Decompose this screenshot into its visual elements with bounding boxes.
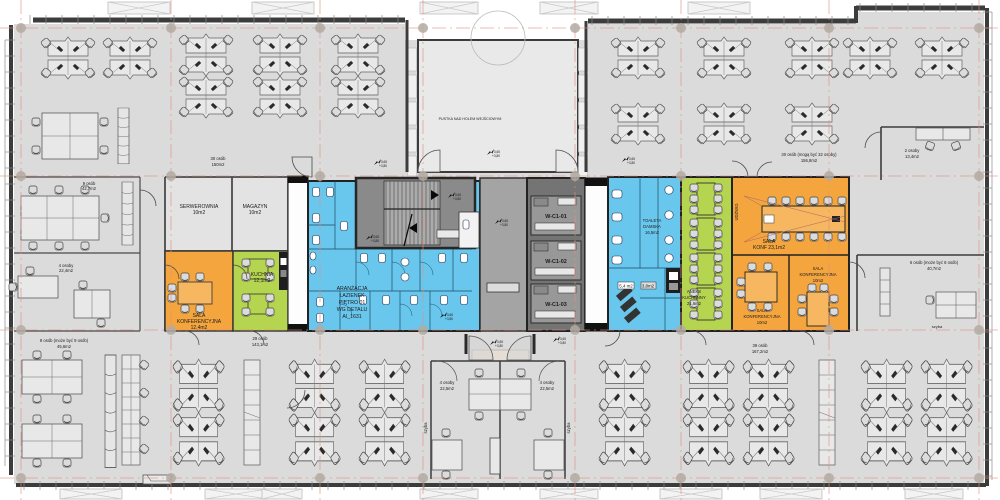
svg-text:22,4m2: 22,4m2 bbox=[59, 268, 74, 273]
svg-text:5,4 m2: 5,4 m2 bbox=[619, 284, 633, 289]
svg-text:150m2: 150m2 bbox=[212, 162, 225, 167]
svg-text:42,7m2: 42,7m2 bbox=[82, 186, 97, 191]
svg-text:TOALETA: TOALETA bbox=[643, 218, 662, 223]
svg-text:W-C1-03: W-C1-03 bbox=[545, 302, 566, 308]
svg-text:10m2: 10m2 bbox=[193, 210, 206, 216]
svg-text:4 osoby: 4 osoby bbox=[440, 380, 456, 385]
svg-text:21,6m2: 21,6m2 bbox=[687, 301, 702, 306]
svg-text:szyba: szyba bbox=[932, 324, 943, 329]
svg-text:10m2: 10m2 bbox=[249, 210, 262, 216]
svg-text:ŁAZIENEK: ŁAZIENEK bbox=[339, 293, 365, 299]
svg-text:30 osób: 30 osób bbox=[211, 156, 227, 161]
svg-text:143,1m2: 143,1m2 bbox=[252, 342, 269, 347]
svg-text:WG DETALU: WG DETALU bbox=[337, 307, 368, 313]
svg-text:10m2: 10m2 bbox=[813, 278, 824, 283]
svg-text:12,1m2: 12,1m2 bbox=[254, 278, 271, 284]
svg-text:AI_1631: AI_1631 bbox=[342, 314, 361, 320]
svg-text:22,5m2: 22,5m2 bbox=[440, 386, 455, 391]
svg-text:3,8m2: 3,8m2 bbox=[642, 284, 655, 289]
svg-text:PIĘTRO 01: PIĘTRO 01 bbox=[339, 300, 366, 306]
svg-text:45,6m2: 45,6m2 bbox=[57, 344, 72, 349]
svg-text:10m2: 10m2 bbox=[757, 320, 768, 325]
svg-text:KUCHENNY: KUCHENNY bbox=[682, 295, 706, 300]
svg-text:40,7m2: 40,7m2 bbox=[927, 266, 942, 271]
svg-text:ANEKS: ANEKS bbox=[687, 289, 701, 294]
svg-text:W-C1-01: W-C1-01 bbox=[545, 214, 566, 220]
svg-text:8 osób (może być 9 osób): 8 osób (może być 9 osób) bbox=[40, 338, 89, 343]
svg-text:PUSTKA NAD HOLEM WEJŚCIOWYM: PUSTKA NAD HOLEM WEJŚCIOWYM bbox=[439, 116, 502, 121]
svg-text:W-C1-02: W-C1-02 bbox=[545, 259, 566, 265]
svg-text:szyba: szyba bbox=[566, 422, 571, 434]
svg-text:156,8m2: 156,8m2 bbox=[801, 158, 818, 163]
svg-text:KONF 23,1m2: KONF 23,1m2 bbox=[753, 245, 785, 251]
svg-text:KONFERENCYJNA: KONFERENCYJNA bbox=[800, 272, 837, 277]
svg-text:29 osób: 29 osób bbox=[253, 336, 269, 341]
svg-text:SALA: SALA bbox=[757, 308, 768, 313]
svg-text:13,4m2: 13,4m2 bbox=[905, 154, 920, 159]
svg-text:ARANŻACJA: ARANŻACJA bbox=[337, 285, 368, 292]
svg-text:DAMSKA: DAMSKA bbox=[643, 224, 661, 229]
svg-text:SALA: SALA bbox=[813, 266, 824, 271]
svg-text:16,5m2: 16,5m2 bbox=[645, 230, 660, 235]
svg-text:szyba: szyba bbox=[423, 422, 428, 434]
svg-text:22,5m2: 22,5m2 bbox=[540, 386, 555, 391]
svg-text:2 osoby: 2 osoby bbox=[905, 148, 921, 153]
svg-text:KONFERENCYJNA: KONFERENCYJNA bbox=[744, 314, 781, 319]
svg-text:4 osoby: 4 osoby bbox=[540, 380, 556, 385]
svg-text:167,2m2: 167,2m2 bbox=[752, 349, 769, 354]
svg-text:39 osób: 39 osób bbox=[753, 343, 769, 348]
svg-text:UDŹWIG: UDŹWIG bbox=[734, 204, 739, 221]
svg-text:6 osób (może być 8 osób): 6 osób (może być 8 osób) bbox=[910, 260, 959, 265]
